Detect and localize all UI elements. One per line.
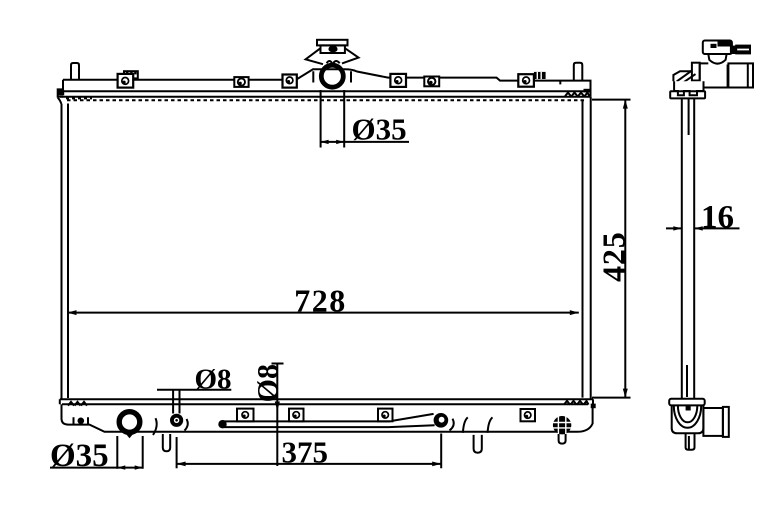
svg-text:Ø35: Ø35: [352, 112, 407, 147]
svg-text:Ø8: Ø8: [252, 364, 285, 402]
svg-text:425: 425: [595, 231, 631, 281]
svg-text:Ø35: Ø35: [50, 438, 109, 474]
svg-text:375: 375: [281, 434, 328, 469]
svg-text:728: 728: [294, 283, 347, 319]
svg-text:16: 16: [701, 200, 734, 236]
